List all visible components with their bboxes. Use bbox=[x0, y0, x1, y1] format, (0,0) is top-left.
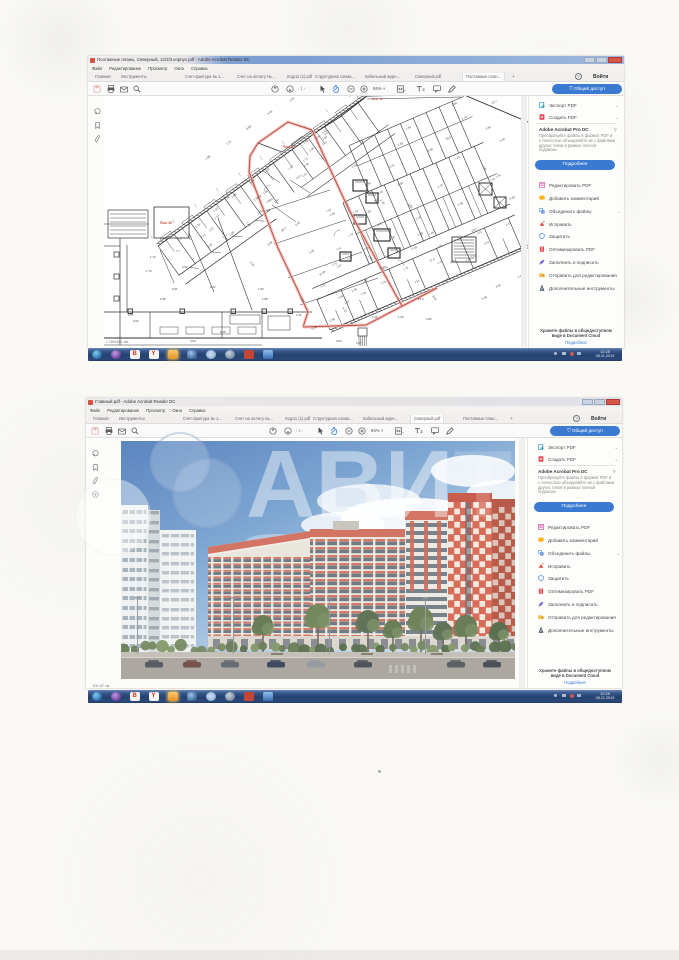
svg-text:5.91: 5.91 bbox=[172, 287, 178, 291]
svg-text:17.5: 17.5 bbox=[429, 257, 436, 263]
svg-text:1.38: 1.38 bbox=[457, 201, 464, 207]
svg-text:2.86: 2.86 bbox=[329, 211, 336, 217]
svg-text:2.08: 2.08 bbox=[360, 290, 367, 296]
svg-text:3.47: 3.47 bbox=[356, 341, 362, 345]
svg-text:1.75: 1.75 bbox=[146, 269, 152, 273]
svg-text:3.46: 3.46 bbox=[346, 255, 353, 261]
svg-text:4.60: 4.60 bbox=[190, 339, 196, 343]
svg-text:1.98: 1.98 bbox=[204, 154, 211, 161]
svg-text:1.05: 1.05 bbox=[454, 155, 461, 161]
svg-text:2.75: 2.75 bbox=[194, 222, 201, 229]
svg-text:2.08: 2.08 bbox=[177, 235, 184, 242]
svg-text:1.46: 1.46 bbox=[372, 315, 378, 319]
svg-text:2.86: 2.86 bbox=[426, 317, 432, 321]
svg-text:2.90: 2.90 bbox=[414, 278, 421, 284]
svg-text:1.40: 1.40 bbox=[405, 125, 412, 131]
svg-text:0.57: 0.57 bbox=[389, 163, 396, 169]
svg-text:Пом. 30: Пом. 30 bbox=[283, 145, 295, 149]
svg-text:11.84: 11.84 bbox=[318, 269, 326, 277]
svg-text:3.44: 3.44 bbox=[431, 294, 438, 301]
svg-text:7.7: 7.7 bbox=[176, 249, 180, 253]
svg-text:1.98: 1.98 bbox=[344, 299, 351, 305]
svg-text:6.12: 6.12 bbox=[210, 285, 216, 289]
svg-text:0.57: 0.57 bbox=[295, 173, 302, 180]
svg-text:2.23: 2.23 bbox=[249, 260, 256, 267]
svg-text:1.59: 1.59 bbox=[436, 243, 443, 249]
svg-text:2.75: 2.75 bbox=[225, 139, 232, 146]
svg-text:1.85: 1.85 bbox=[417, 231, 424, 237]
svg-text:5.82: 5.82 bbox=[294, 220, 301, 227]
svg-text:2.49: 2.49 bbox=[481, 295, 488, 301]
svg-text:▾: ▾ bbox=[404, 88, 406, 92]
svg-text:2.44: 2.44 bbox=[288, 96, 295, 103]
svg-text:1.70: 1.70 bbox=[403, 265, 410, 271]
svg-text:1.63: 1.63 bbox=[326, 207, 333, 213]
svg-text:1.50: 1.50 bbox=[212, 206, 219, 213]
svg-text:9.39: 9.39 bbox=[427, 147, 434, 153]
svg-text:1.70: 1.70 bbox=[302, 156, 309, 163]
svg-text:2.75: 2.75 bbox=[436, 259, 443, 265]
svg-text:7.99: 7.99 bbox=[481, 164, 488, 171]
svg-text:3.46: 3.46 bbox=[206, 242, 213, 249]
svg-text:0.28: 0.28 bbox=[411, 245, 418, 251]
svg-text:38.7: 38.7 bbox=[280, 226, 287, 233]
svg-text:2.08: 2.08 bbox=[308, 146, 315, 153]
svg-text:4.45: 4.45 bbox=[308, 248, 315, 255]
svg-text:Пом. IV: Пом. IV bbox=[372, 97, 383, 101]
svg-text:1.88: 1.88 bbox=[428, 230, 435, 236]
svg-text:6.18: 6.18 bbox=[220, 330, 226, 334]
svg-text:1.60: 1.60 bbox=[397, 141, 404, 147]
svg-text:0.60: 0.60 bbox=[133, 319, 139, 323]
svg-text:1.88: 1.88 bbox=[160, 297, 166, 301]
svg-text:1.98: 1.98 bbox=[287, 164, 294, 171]
svg-text:2.78: 2.78 bbox=[379, 198, 386, 205]
svg-text:2.98: 2.98 bbox=[329, 317, 336, 323]
svg-text:2.44: 2.44 bbox=[395, 249, 402, 255]
svg-text:2.49: 2.49 bbox=[351, 287, 358, 293]
svg-text:7.30: 7.30 bbox=[245, 220, 252, 227]
svg-text:1.63: 1.63 bbox=[365, 209, 372, 215]
svg-text:1.58: 1.58 bbox=[262, 297, 268, 301]
svg-text:2.44: 2.44 bbox=[365, 181, 372, 187]
svg-text:2.63: 2.63 bbox=[182, 265, 188, 269]
svg-text:2.74: 2.74 bbox=[461, 115, 468, 121]
svg-text:1.50: 1.50 bbox=[213, 213, 220, 220]
svg-text:2.44: 2.44 bbox=[483, 240, 490, 246]
svg-text:4.10: 4.10 bbox=[341, 306, 348, 313]
svg-text:1.63: 1.63 bbox=[320, 283, 327, 289]
svg-text:1.63: 1.63 bbox=[362, 278, 369, 284]
svg-text:1.70: 1.70 bbox=[347, 232, 354, 238]
svg-text:2.75: 2.75 bbox=[437, 183, 444, 189]
svg-text:1.98: 1.98 bbox=[302, 138, 309, 145]
svg-text:23.2: 23.2 bbox=[445, 135, 452, 141]
svg-text:1.70: 1.70 bbox=[150, 255, 156, 259]
svg-text:5.63: 5.63 bbox=[509, 195, 516, 201]
svg-text:1.10: 1.10 bbox=[415, 215, 422, 221]
svg-text:2.55: 2.55 bbox=[407, 202, 414, 209]
svg-text:22.7: 22.7 bbox=[491, 99, 498, 105]
svg-text:0.25: 0.25 bbox=[499, 137, 506, 143]
svg-text:1.60: 1.60 bbox=[258, 287, 264, 291]
svg-text:1.52: 1.52 bbox=[296, 313, 302, 317]
svg-text:3.44: 3.44 bbox=[336, 246, 343, 252]
svg-text:3.46: 3.46 bbox=[449, 259, 456, 265]
svg-text:1.05: 1.05 bbox=[264, 166, 271, 173]
svg-text:1.47: 1.47 bbox=[505, 221, 512, 227]
svg-text:0.57: 0.57 bbox=[128, 313, 134, 317]
svg-text:5.48: 5.48 bbox=[266, 109, 273, 116]
svg-text:2.86: 2.86 bbox=[377, 189, 384, 195]
svg-text:2.08: 2.08 bbox=[266, 240, 273, 247]
svg-text:3.8: 3.8 bbox=[377, 221, 383, 226]
svg-text:0.80: 0.80 bbox=[245, 124, 252, 131]
svg-text:Пом. 30: Пом. 30 bbox=[160, 221, 172, 225]
svg-text:1.91: 1.91 bbox=[495, 173, 502, 179]
svg-text:4.62: 4.62 bbox=[495, 283, 502, 289]
svg-text:1.08: 1.08 bbox=[389, 235, 396, 241]
svg-text:2.75: 2.75 bbox=[200, 233, 207, 240]
svg-text:2.20: 2.20 bbox=[301, 171, 308, 178]
svg-text:16.0: 16.0 bbox=[418, 297, 424, 301]
svg-text:2.84: 2.84 bbox=[336, 339, 342, 343]
svg-text:1.59: 1.59 bbox=[352, 209, 359, 215]
svg-text:1.90: 1.90 bbox=[485, 125, 492, 131]
svg-text:1.63: 1.63 bbox=[208, 226, 215, 233]
svg-text:2.84: 2.84 bbox=[451, 101, 458, 107]
svg-text:1.05: 1.05 bbox=[398, 315, 404, 319]
svg-text:0.28: 0.28 bbox=[397, 181, 404, 187]
